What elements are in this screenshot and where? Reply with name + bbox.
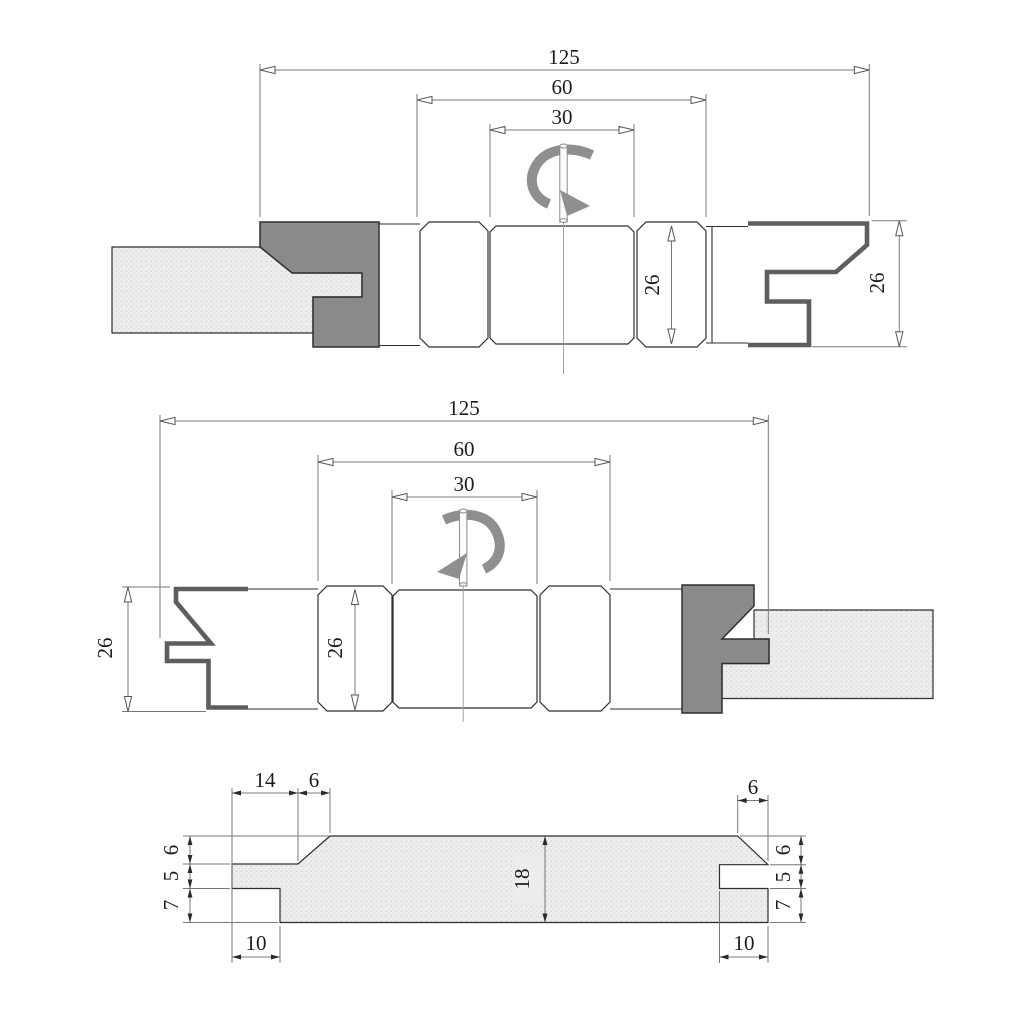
counter-knife-profile-left [167, 589, 248, 708]
hub-collar-left [420, 222, 488, 347]
dim-label-5-right: 5 [771, 872, 795, 883]
spindle-rod-base-mid [460, 583, 467, 587]
spindle-rod-cap [560, 144, 567, 148]
dim-label-7-right: 7 [771, 900, 795, 911]
dim-label-7-left: 7 [159, 900, 183, 911]
board-cross-section [232, 836, 768, 923]
middle-assembly-view: 125 60 30 26 26 [93, 396, 933, 722]
dim-label-10-right: 10 [734, 931, 755, 955]
dim-label-10-left: 10 [246, 931, 267, 955]
dim-label-18: 18 [510, 869, 534, 890]
dim-tongue-length-10: 10 [232, 926, 280, 963]
dim-label-125: 125 [548, 45, 580, 69]
technical-drawing: 125 60 30 26 26 [0, 0, 1024, 1024]
top-assembly-view: 125 60 30 26 26 [112, 45, 907, 374]
spindle-rod-base [560, 219, 567, 223]
dim-profile-width-top: 26 [812, 221, 907, 347]
dim-label-14: 14 [255, 768, 277, 792]
dim-label-26-hub: 26 [640, 275, 664, 296]
spindle-rod-cap-mid [460, 509, 467, 513]
dim-label-26-hub-mid: 26 [323, 638, 347, 659]
dim-label-5-left: 5 [159, 871, 183, 882]
dim-chamfer-left-6: 6 [298, 768, 330, 833]
board-profile-view: 14 6 6 5 7 10 [159, 768, 806, 963]
hub-center-block [490, 226, 634, 344]
spindle-rod-mid [460, 511, 467, 586]
dim-label-60: 60 [552, 75, 573, 99]
dim-label-6-chamfer-left: 6 [309, 768, 320, 792]
hub-center-block-mid [393, 590, 537, 708]
dim-label-6-right: 6 [771, 845, 795, 856]
dim-label-6-chamfer-right: 6 [748, 775, 759, 799]
rotation-arrow-arc-mid [444, 515, 500, 569]
dim-label-30-mid: 30 [454, 472, 475, 496]
dim-label-26-profile-mid: 26 [93, 638, 117, 659]
dim-label-6-left: 6 [159, 845, 183, 856]
dim-label-125-mid: 125 [448, 396, 480, 420]
hub-collar-right-mid [540, 586, 610, 711]
counter-knife-profile-right [748, 224, 867, 346]
dim-label-60-mid: 60 [454, 437, 475, 461]
drawing-canvas: 125 60 30 26 26 [0, 0, 1024, 1024]
dim-profile-width-mid: 26 [93, 587, 206, 712]
dim-label-26-profile: 26 [865, 273, 889, 294]
dim-label-30: 30 [552, 105, 573, 129]
